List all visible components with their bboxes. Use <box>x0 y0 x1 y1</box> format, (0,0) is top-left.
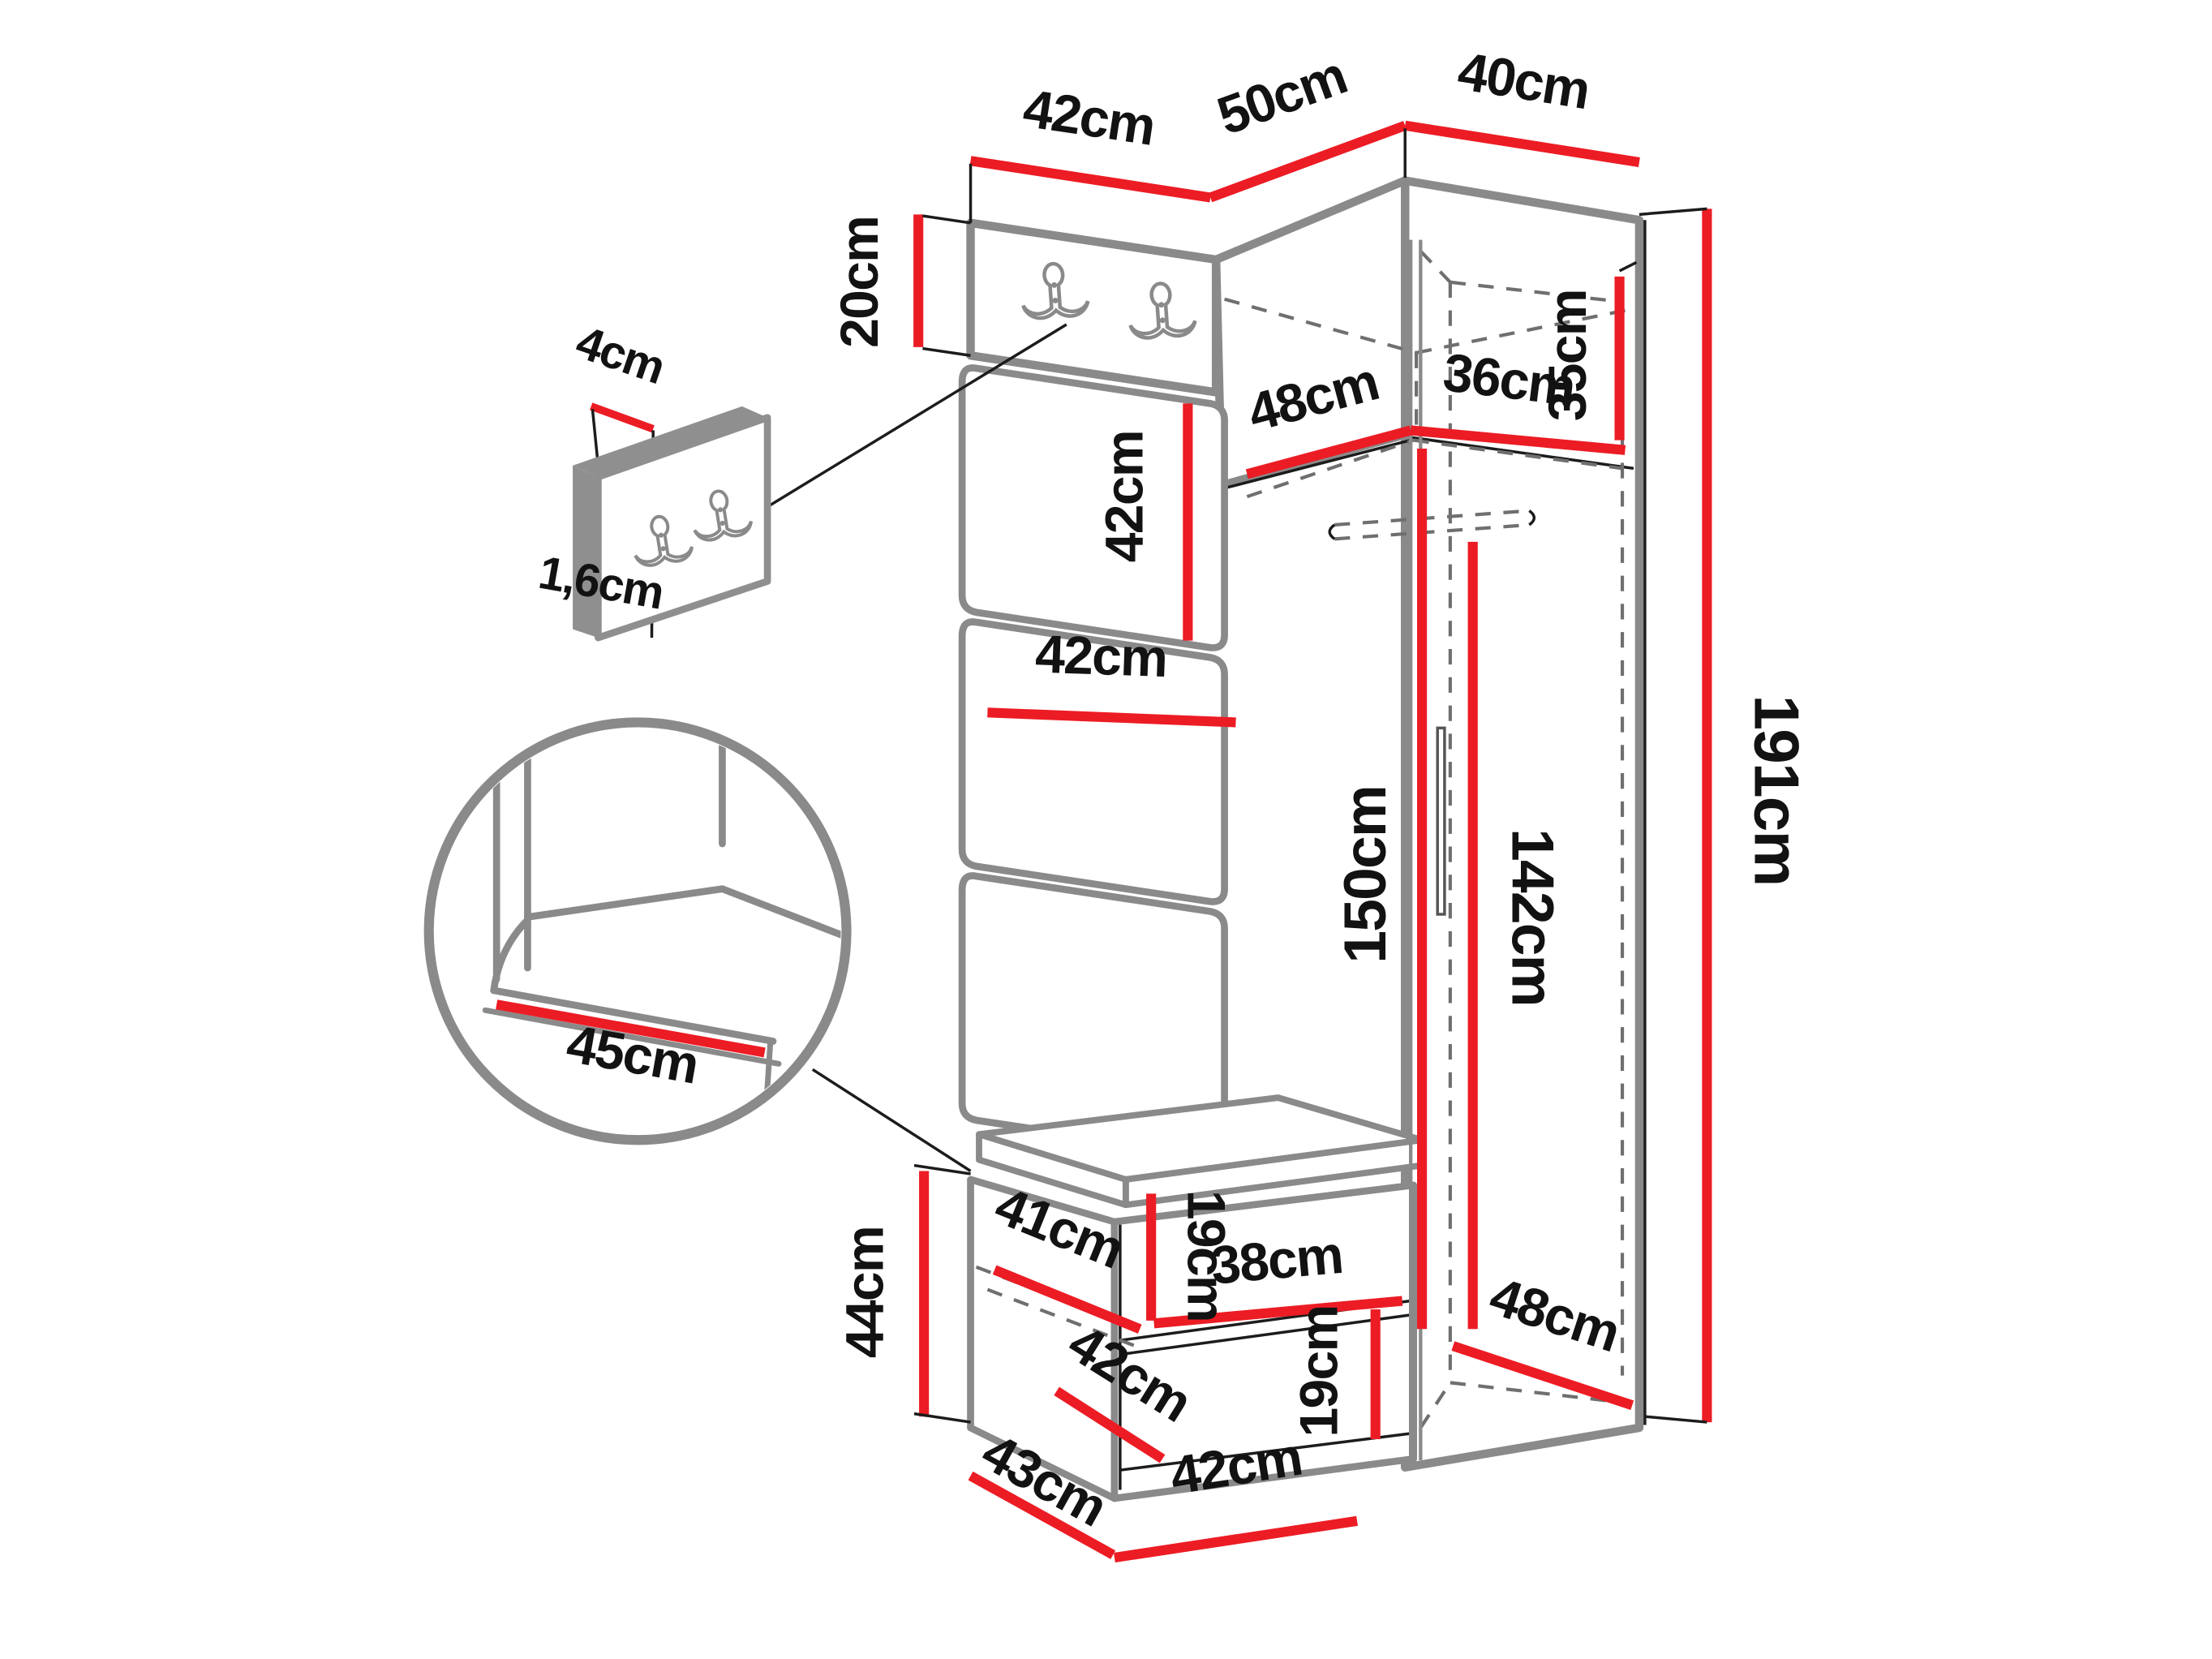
dim-top-panel-width: 42cm <box>1020 79 1158 157</box>
dim-corner-front-width: 50cm <box>1210 45 1355 147</box>
furniture-dimension-diagram: 42cm 50cm 40cm 20cm 4cm 1,6cm 42cm 48cm … <box>0 0 2212 1659</box>
dim-hanging-height: 150cm <box>1333 786 1398 964</box>
hallway-set-diagram: 42cm 50cm 40cm 20cm 4cm 1,6cm 42cm 48cm … <box>0 0 2212 1659</box>
dim-line-bench-width <box>1115 1521 1357 1558</box>
dim-corner-side-width: 40cm <box>1454 41 1593 121</box>
wall-hook-panel <box>971 223 1217 393</box>
dim-line-detail-panel-width <box>591 406 654 429</box>
dim-bench-height: 44cm <box>835 1227 896 1358</box>
dim-total-height: 191cm <box>1742 694 1813 885</box>
dim-line-corner-side-width <box>1405 126 1639 162</box>
dim-shelf-width: 38cm <box>1209 1225 1345 1296</box>
dim-cushion-width: 42cm <box>1034 625 1168 690</box>
dim-cushion-height: 42cm <box>1095 431 1155 562</box>
dim-line-top-panel-width <box>971 161 1211 197</box>
dim-detail-panel-width: 4cm <box>569 316 670 394</box>
seat-detail-circle <box>429 722 971 1171</box>
dim-lower-niche-height: 19cm <box>1290 1305 1350 1437</box>
hook-panel-front <box>971 223 1217 393</box>
door-handle-icon <box>1437 728 1445 914</box>
dim-top-box-height: 35cm <box>1538 290 1598 421</box>
circle-callout-line <box>813 1069 971 1171</box>
dim-door-height: 142cm <box>1499 828 1565 1006</box>
dim-hook-panel-height: 20cm <box>830 217 890 348</box>
